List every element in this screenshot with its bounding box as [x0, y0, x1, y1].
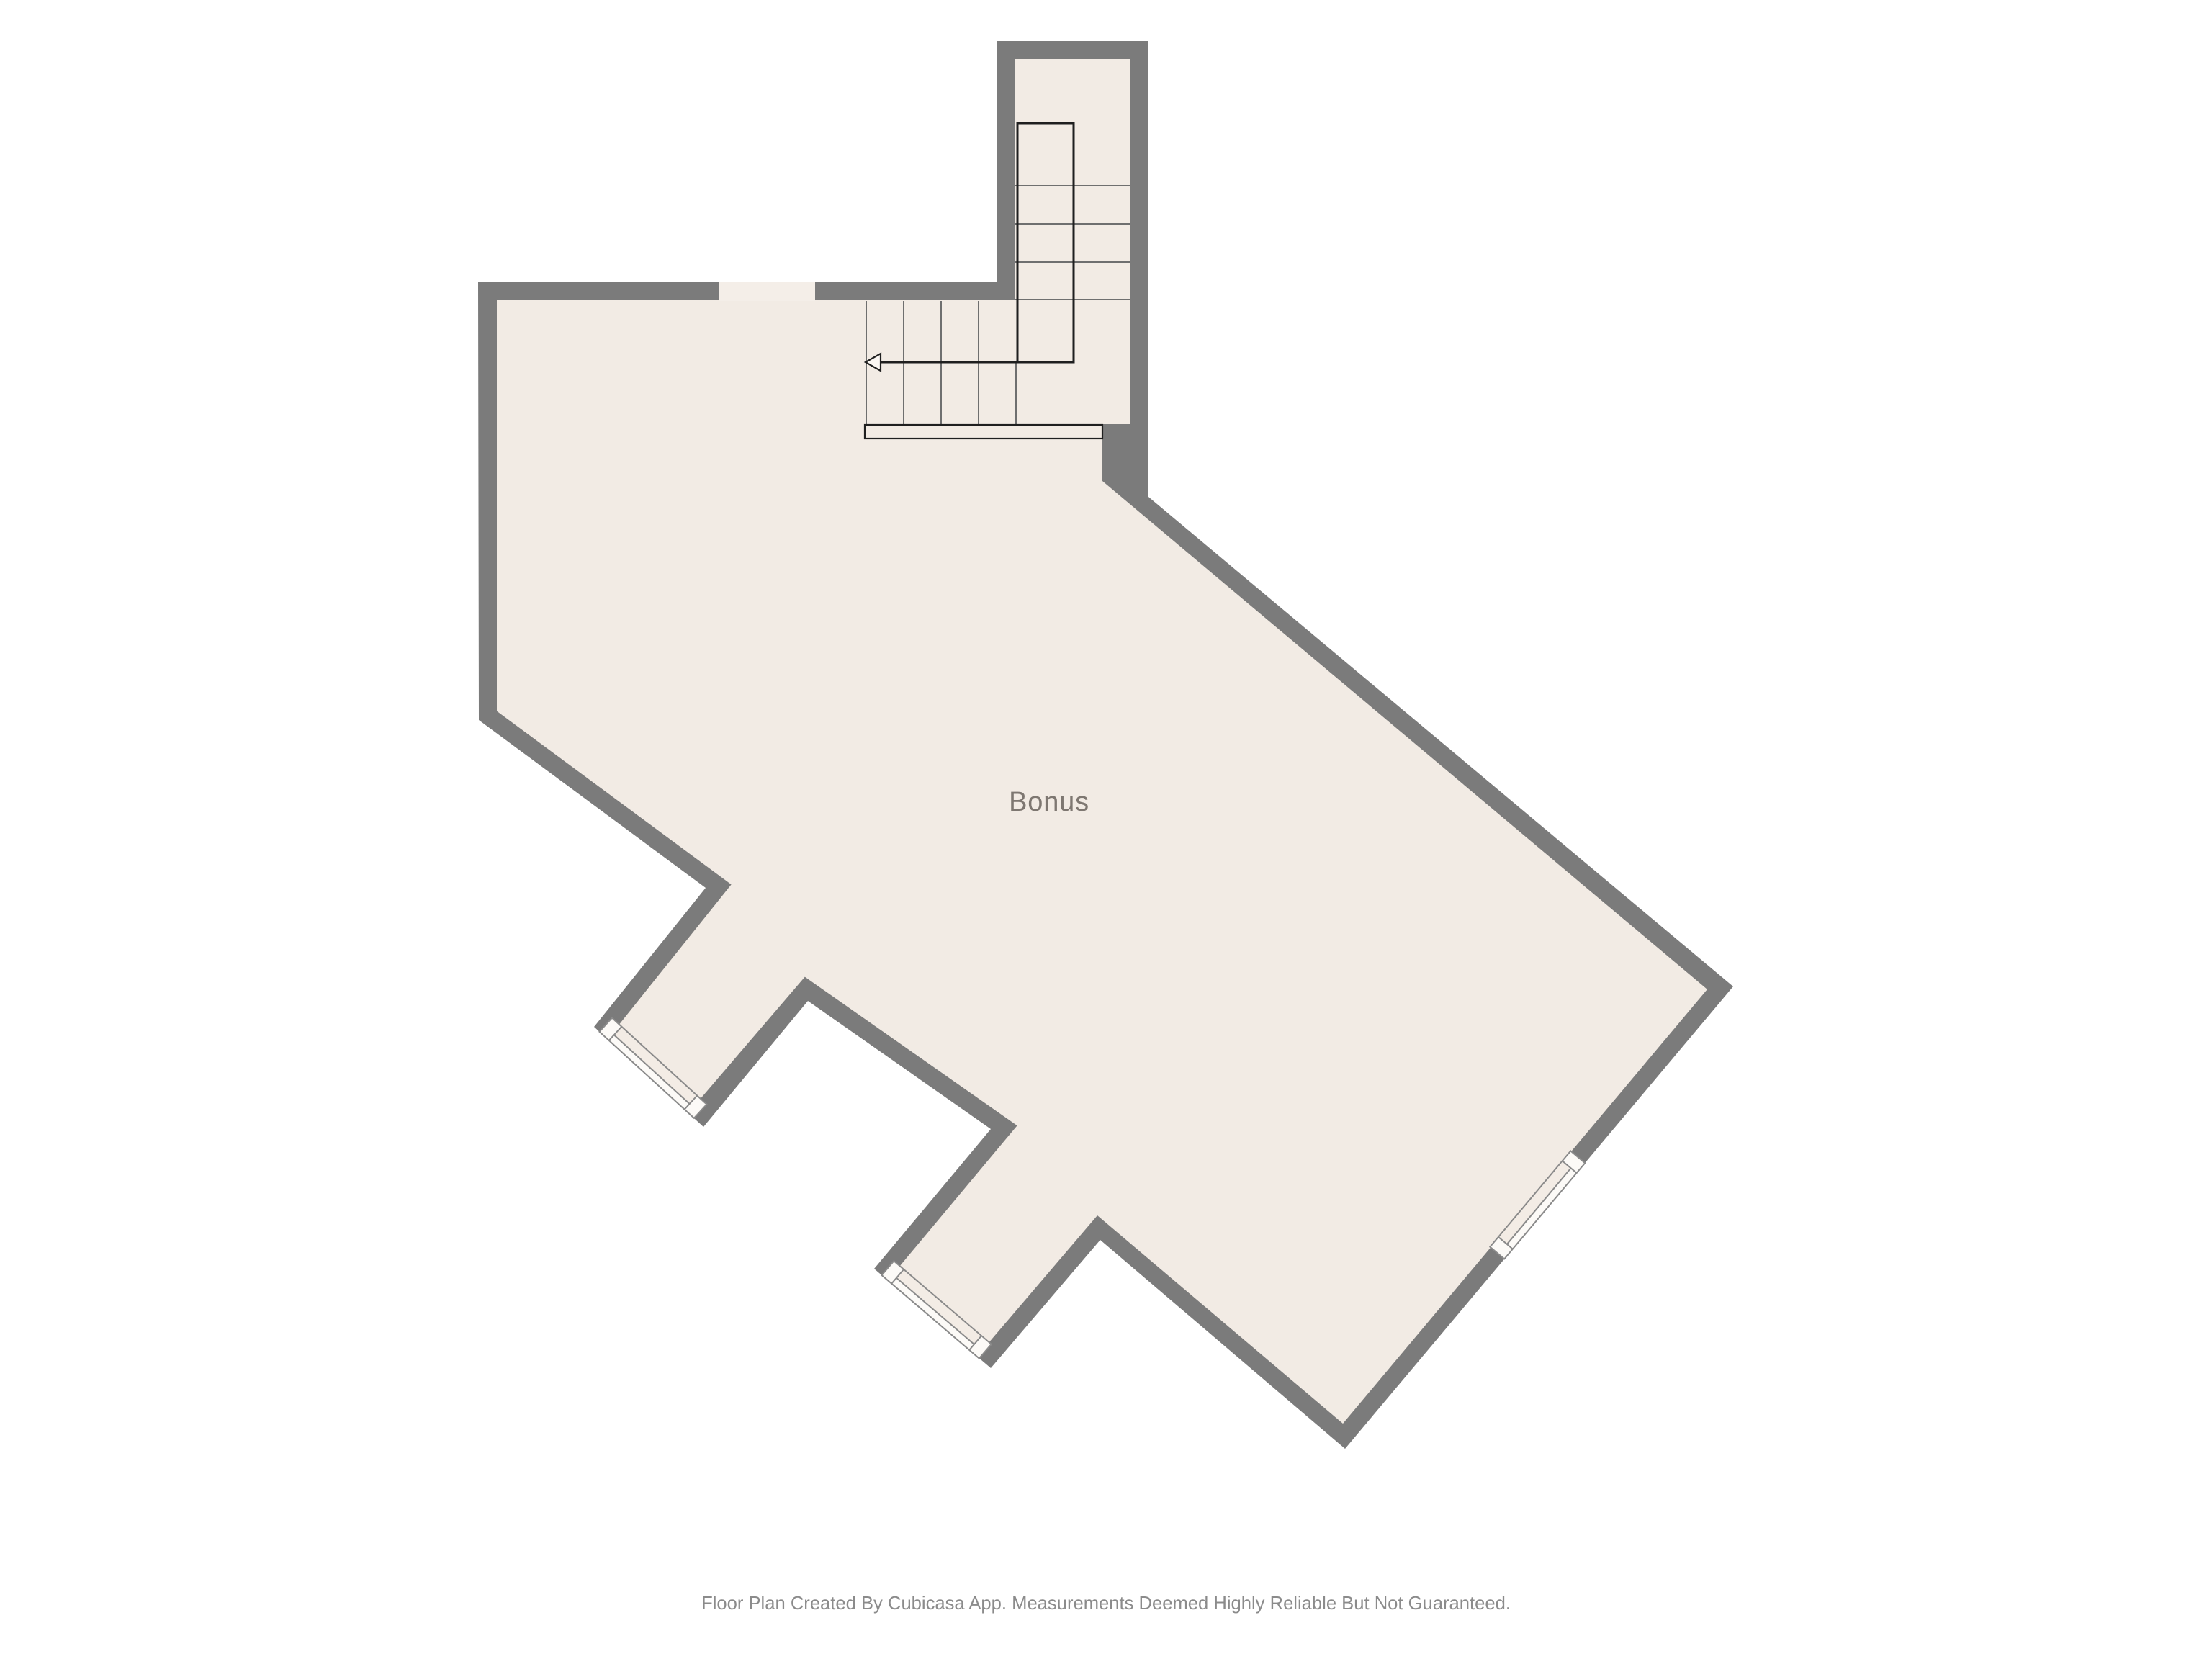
- room-label: Bonus: [1009, 787, 1089, 817]
- footer-disclaimer: Floor Plan Created By Cubicasa App. Meas…: [701, 1593, 1511, 1614]
- floor-plan-canvas: Bonus Floor Plan Created By Cubicasa App…: [0, 0, 2212, 1659]
- stair-landing-edge: [865, 425, 1102, 439]
- wall-opening: [719, 282, 815, 301]
